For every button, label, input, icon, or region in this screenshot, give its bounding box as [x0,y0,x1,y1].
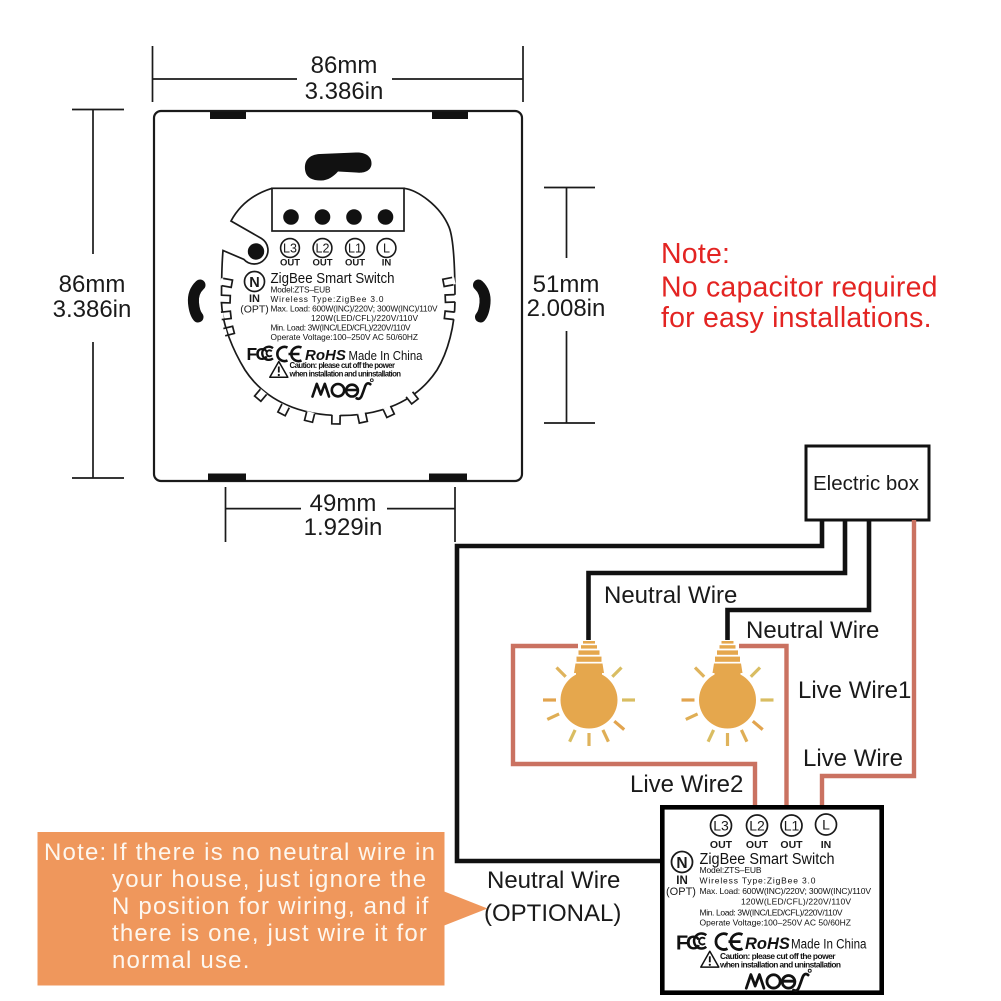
svg-text:L: L [822,817,830,833]
svg-text:L3: L3 [283,242,297,256]
svg-text:your house, just ignore the: your house, just ignore the [112,866,427,893]
svg-text:If there is no neutral wire in: If there is no neutral wire in [112,839,436,866]
svg-text:IN: IN [382,258,392,269]
svg-text:OUT: OUT [280,258,300,269]
svg-text:L: L [383,242,390,256]
svg-text:Neutral Wire: Neutral Wire [746,617,879,644]
svg-text:when installation and uninstal: when installation and uninstallation [719,960,841,970]
svg-text:when installation and uninstal: when installation and uninstallation [289,370,402,379]
svg-text:N: N [676,855,687,872]
svg-text:Live Wire: Live Wire [803,745,903,772]
svg-text:Electric box: Electric box [813,472,920,495]
svg-text:86mm: 86mm [59,271,126,298]
svg-text:IN: IN [821,839,832,851]
svg-text:1.929in: 1.929in [304,514,383,541]
svg-text:Operate Voltage:100–250V AC 50: Operate Voltage:100–250V AC 50/60HZ [700,917,852,927]
svg-text:normal use.: normal use. [112,947,251,974]
svg-text:No capacitor required: No capacitor required [661,272,938,304]
svg-text:Note:: Note: [661,238,730,270]
svg-text:Live Wire1: Live Wire1 [798,677,911,704]
svg-text:Min. Load: 3W(INC/LED/CFL)/220: Min. Load: 3W(INC/LED/CFL)/220V/110V [700,907,843,917]
svg-text:for easy installations.: for easy installations. [661,302,932,334]
svg-text:Neutral Wire: Neutral Wire [604,582,737,609]
svg-text:OUT: OUT [312,258,332,269]
svg-text:86mm: 86mm [311,52,378,79]
svg-text:(OPT): (OPT) [240,304,269,316]
svg-text:120W(LED/CFL)/220V/110V: 120W(LED/CFL)/220V/110V [741,897,851,907]
svg-text:3.386in: 3.386in [53,296,132,323]
svg-text:Min. Load: 3W(INC/LED/CFL)/220: Min. Load: 3W(INC/LED/CFL)/220V/110V [271,323,411,333]
svg-text:OUT: OUT [746,839,769,851]
svg-text:OUT: OUT [710,839,733,851]
svg-text:Wireless Type:ZigBee 3.0: Wireless Type:ZigBee 3.0 [700,875,816,885]
svg-text:Max. Load: 600W(INC)/220V; 300: Max. Load: 600W(INC)/220V; 300W(INC)/110… [271,304,438,314]
svg-text:OUT: OUT [780,839,803,851]
svg-text:OUT: OUT [345,258,365,269]
svg-text:Live Wire2: Live Wire2 [630,771,743,798]
svg-text:Wireless Type:ZigBee 3.0: Wireless Type:ZigBee 3.0 [271,294,384,304]
svg-text:3.386in: 3.386in [305,78,384,105]
svg-text:49mm: 49mm [310,490,377,517]
svg-text:120W(LED/CFL)/220V/110V: 120W(LED/CFL)/220V/110V [311,313,418,323]
svg-text:Neutral Wire: Neutral Wire [487,867,620,894]
svg-text:Note:: Note: [44,839,107,866]
svg-text:L1: L1 [784,818,800,834]
svg-text:L1: L1 [348,242,362,256]
svg-text:L2: L2 [316,242,330,256]
svg-text:L3: L3 [713,818,729,834]
svg-text:(OPTIONAL): (OPTIONAL) [484,900,621,927]
svg-text:51mm: 51mm [533,271,600,298]
svg-text:2.008in: 2.008in [527,295,606,322]
svg-text:there is one, just wire it for: there is one, just wire it for [112,920,428,947]
svg-text:N: N [249,275,259,291]
svg-text:L2: L2 [749,818,765,834]
svg-text:Model:ZTS–EUB: Model:ZTS–EUB [271,285,331,295]
svg-text:Operate Voltage:100–250V AC 50: Operate Voltage:100–250V AC 50/60HZ [271,332,419,342]
svg-text:N position for wiring, and if: N position for wiring, and if [112,893,430,920]
svg-text:Max. Load: 600W(INC)/220V; 300: Max. Load: 600W(INC)/220V; 300W(INC)/110… [700,886,872,896]
svg-text:(OPT): (OPT) [666,886,696,898]
svg-text:Model:ZTS–EUB: Model:ZTS–EUB [700,865,762,875]
svg-text:Made In China: Made In China [791,937,867,952]
